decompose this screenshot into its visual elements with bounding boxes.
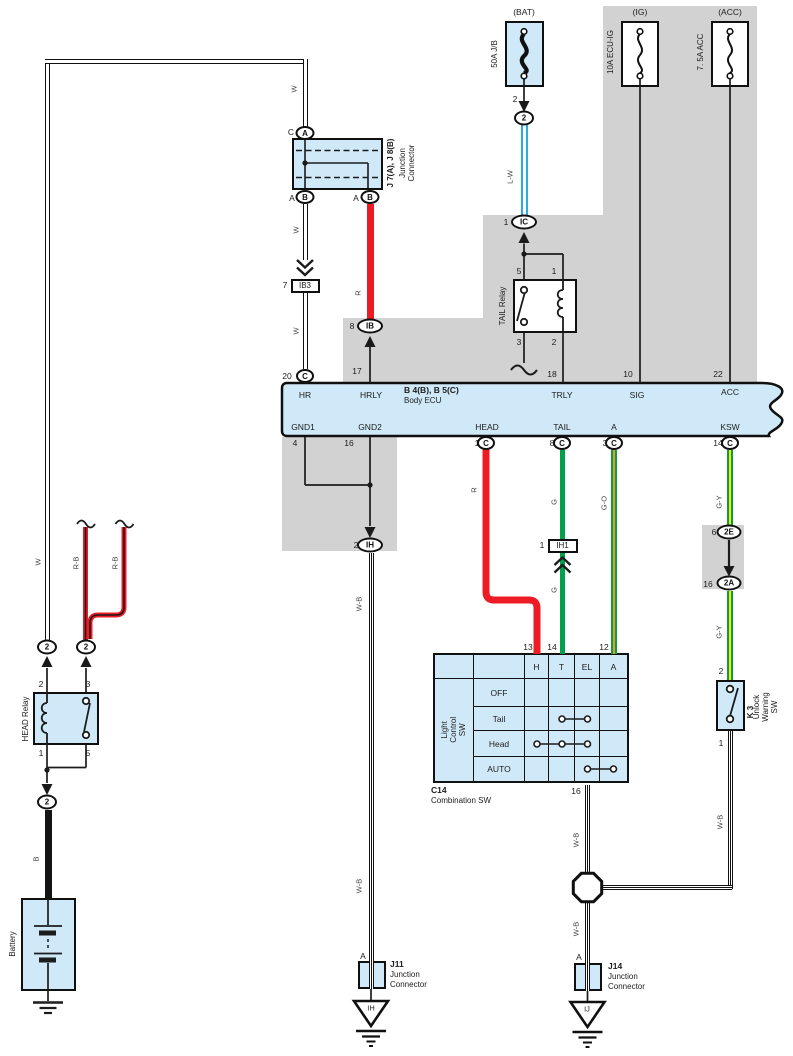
pin-num: 1	[719, 739, 724, 748]
pin-num: A	[576, 953, 582, 962]
junction-connector-name: J 7(A), J 8(B)	[387, 139, 395, 188]
pin-num: 1	[540, 541, 545, 550]
wiring-diagram: IB3 IH1 H T EL A Light Control SW OFF Ta…	[0, 0, 793, 1056]
pin-num: 3	[517, 338, 522, 347]
junction-connector-internals	[296, 140, 379, 188]
wire-label-b: B	[32, 856, 40, 861]
connector-oval: B	[361, 190, 380, 204]
ecu-title-block: B 4(B), B 5(C) Body ECU	[404, 385, 459, 406]
pin-num: 16	[344, 439, 353, 448]
splice-node	[573, 873, 601, 901]
ecu-subtitle: Body ECU	[404, 396, 459, 406]
ecu-pin-tail: TAIL	[553, 423, 570, 432]
pin-num: 1	[552, 267, 557, 276]
ecu-pin-gnd2: GND2	[358, 423, 382, 432]
ecu-pin-a: A	[611, 423, 617, 432]
j14-id: J14	[608, 961, 645, 972]
ib3-connector-box: IB3	[291, 279, 320, 293]
pin-num: 2	[39, 680, 44, 689]
connector-oval-2a: 2A	[717, 576, 742, 591]
connector-oval: C	[477, 436, 495, 450]
pin-num: 8	[550, 439, 555, 448]
c14-id: C14	[431, 785, 491, 796]
pin-num: 2	[719, 667, 724, 676]
wire-label-w: W	[292, 226, 300, 233]
wire-label-lw: L-W	[506, 170, 514, 184]
connector-oval: C	[721, 436, 739, 450]
j11-desc2: Connector	[390, 980, 427, 990]
connector-oval: C	[605, 436, 623, 450]
ecu-pin-acc: ACC	[721, 388, 739, 397]
wire-label-r: R	[354, 290, 362, 295]
c14-contacts	[534, 716, 617, 772]
ecu-pin-gnd1: GND1	[291, 423, 315, 432]
pin-num: C	[288, 128, 294, 137]
wire-label-r: R	[470, 487, 478, 492]
pin-num: 3	[86, 680, 91, 689]
ground-symbols	[354, 1001, 605, 1047]
connector-oval-2e: 2E	[717, 525, 742, 540]
ecu-pin-trly: TRLY	[551, 391, 572, 400]
head-relay-internals	[42, 692, 90, 745]
connector-oval: C	[553, 436, 571, 450]
junction-connector-desc: Junction Connector	[398, 145, 416, 182]
wire-label-go: G-O	[600, 496, 608, 510]
wire-label-wb: W-B	[572, 922, 580, 936]
connector-oval: 2	[514, 111, 534, 126]
pin-num: 12	[599, 643, 608, 652]
ecu-pin-head: HEAD	[475, 423, 499, 432]
pin-num: 1	[504, 218, 509, 227]
j11-tri-label: IH	[367, 1004, 375, 1012]
ib3-label: IB3	[299, 281, 311, 290]
j11-id: J11	[390, 959, 427, 970]
pin-num: 7	[283, 281, 288, 290]
head-relay-name: HEAD Relay	[22, 697, 30, 742]
pin-num: 2	[354, 541, 359, 550]
fuse-bat-name: 50A J/B	[491, 40, 499, 68]
pin-num: A	[353, 194, 359, 203]
j14-desc1: Junction	[608, 972, 645, 982]
j14-desc2: Connector	[608, 982, 645, 992]
connector-oval-ih: IH	[357, 538, 383, 553]
j11-desc1: Junction	[390, 970, 427, 980]
fuse-acc-name: 7. 5A ACC	[697, 34, 705, 71]
pin-num: 2	[552, 338, 557, 347]
tail-relay-internals	[517, 280, 563, 333]
pin-num: A	[289, 194, 295, 203]
ecu-title: B 4(B), B 5(C)	[404, 385, 459, 396]
wire-label-w: W	[292, 327, 300, 334]
wire-label-w: W	[34, 558, 42, 565]
connector-oval-ic: IC	[511, 215, 537, 230]
pin-num: 1	[475, 439, 480, 448]
wire-label-w: W	[290, 85, 298, 92]
pin-num: 10	[623, 370, 632, 379]
pin-num: 22	[713, 370, 722, 379]
pin-num: 6	[712, 528, 717, 537]
body-ecu-shape	[282, 383, 782, 436]
pin-num: 3	[603, 439, 608, 448]
j14-name-block: J14 Junction Connector	[608, 961, 645, 992]
connector-oval: B	[296, 190, 315, 204]
pin-num: 13	[523, 643, 532, 652]
unlock-warning-sw-internals	[727, 686, 738, 723]
fuse-ig-name: 10A ECU-IG	[607, 30, 615, 74]
pin-num: 8	[350, 322, 355, 331]
connector-oval: A	[296, 126, 315, 140]
wire-label-gy: G-Y	[715, 495, 723, 508]
tail-relay-name: TAIL Relay	[499, 287, 507, 326]
wire-label-gy: G-Y	[715, 625, 723, 638]
connector-oval: 2	[76, 640, 96, 655]
pin-num: 14	[713, 439, 722, 448]
wire-label-g: G	[550, 499, 558, 505]
pin-num: 5	[517, 267, 522, 276]
connector-oval: 2	[37, 640, 57, 655]
pin-num: 14	[547, 643, 556, 652]
continuation-squiggle	[511, 366, 537, 375]
wire-label-rb: R-B	[111, 557, 119, 570]
ecu-pin-sig: SIG	[630, 391, 645, 400]
fuse-ig-header: (IG)	[633, 8, 648, 17]
pin-num: 16	[703, 580, 712, 589]
ih1-label: IH1	[556, 541, 568, 550]
fuse-bat-header: (BAT)	[513, 8, 535, 17]
j14-tri-label: IJ	[584, 1005, 590, 1013]
connector-oval: 2	[37, 795, 57, 810]
connector-arrows	[42, 101, 530, 795]
ih1-connector-box: IH1	[548, 539, 578, 553]
wire-label-wb: W-B	[355, 879, 363, 893]
ecu-pin-hrly: HRLY	[360, 391, 382, 400]
connector-oval-ib: IB	[357, 319, 383, 334]
wire-label-wb: W-B	[355, 597, 363, 611]
wire-label-wb: W-B	[572, 833, 580, 847]
pin-num: 17	[352, 367, 361, 376]
wire-label-rb: R-B	[72, 557, 80, 570]
ecu-pin-ksw: KSW	[720, 423, 739, 432]
pin-num: 2	[513, 95, 518, 104]
unlock-sw-name: Unlock Warning SW	[752, 692, 780, 722]
wire-r-head	[486, 449, 537, 654]
battery-name: Battery	[9, 931, 17, 956]
connector-oval: C	[296, 369, 314, 383]
wire-label-wb: W-B	[716, 815, 724, 829]
pin-num: 18	[547, 370, 556, 379]
diagram-artwork	[0, 0, 793, 1056]
wire-rb-pair	[77, 521, 134, 641]
ecu-pin-hr: HR	[299, 391, 311, 400]
wire-label-g: G	[550, 587, 558, 593]
pin-num: 20	[282, 372, 291, 381]
pin-num: 4	[293, 439, 298, 448]
c14-name: Combination SW	[431, 796, 491, 806]
pin-num: 16	[571, 787, 580, 796]
c14-name-block: C14 Combination SW	[431, 785, 491, 806]
pin-num: 5	[86, 749, 91, 758]
pin-num: A	[360, 952, 366, 961]
j11-name-block: J11 Junction Connector	[390, 959, 427, 990]
pin-num: 1	[39, 749, 44, 758]
junction-dots	[44, 160, 526, 772]
fuse-acc-header: (ACC)	[718, 8, 742, 17]
